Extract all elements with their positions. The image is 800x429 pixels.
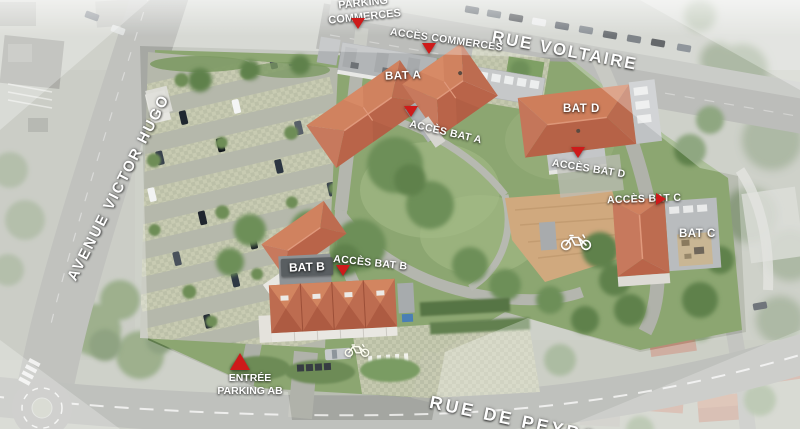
access-label-acces-commerces: ACCÈS COMMERCES [389, 26, 503, 54]
building-label-bat-c: BAT C [679, 228, 716, 240]
bicycle-icon [344, 341, 370, 358]
building-label-bat-d: BAT D [563, 103, 600, 115]
acces-bat-a-marker-icon [404, 106, 418, 117]
entree-parking-ab-marker-icon [230, 353, 250, 370]
acces-bat-b-marker-icon [336, 265, 350, 276]
access-label-acces-bat-a: ACCÈS BAT A [408, 118, 483, 146]
site-plan: RUE VOLTAIRE AVENUE VICTOR HUGO RUE DE P… [0, 0, 800, 429]
access-label-entree-parking-ab: ENTRÉE PARKING AB [198, 372, 302, 398]
label-overlay: RUE VOLTAIRE AVENUE VICTOR HUGO RUE DE P… [0, 0, 800, 429]
bicycle-icon [560, 231, 592, 251]
acces-commerces-marker-icon [422, 43, 436, 54]
access-label-acces-bat-d: ACCÈS BAT D [551, 157, 626, 180]
building-label-bat-a: BAT A [385, 69, 422, 82]
street-label-rue-de-peyro: RUE DE PEYRO [428, 392, 601, 429]
street-label-avenue-victor-hugo: AVENUE VICTOR HUGO [64, 91, 173, 283]
access-label-acces-bat-c: ACCÈS BAT C [607, 192, 682, 207]
parking-commerces-marker-icon [351, 18, 365, 29]
acces-bat-c-marker-icon [656, 193, 666, 205]
acces-bat-d-marker-icon [571, 147, 585, 158]
building-label-bat-b: BAT B [281, 257, 333, 277]
street-label-rue-voltaire: RUE VOLTAIRE [490, 27, 639, 75]
